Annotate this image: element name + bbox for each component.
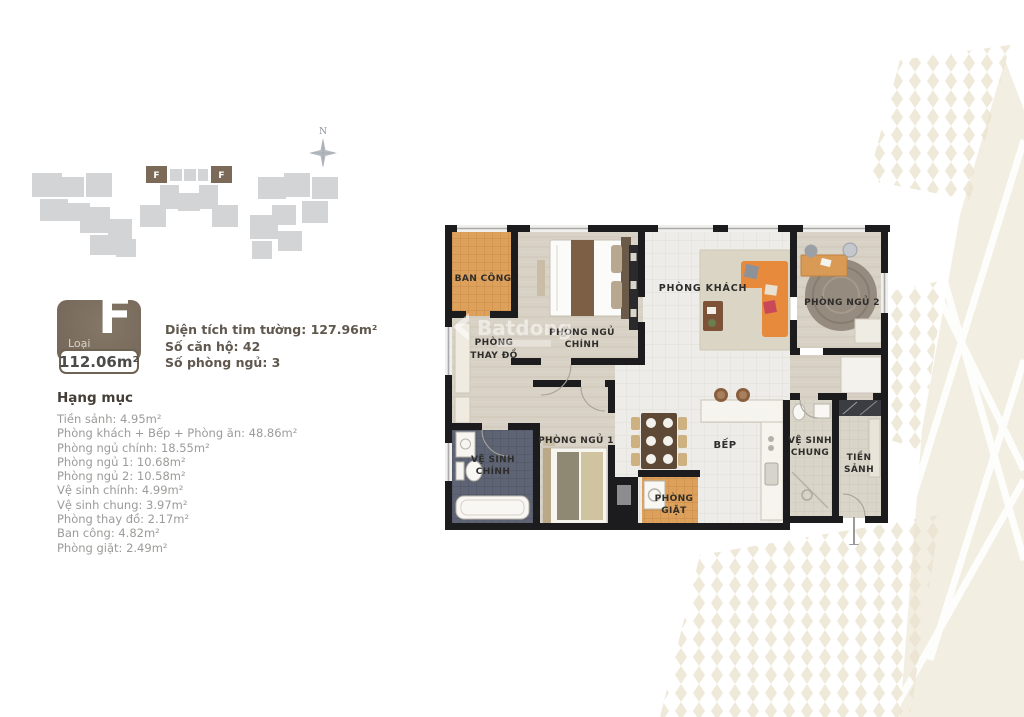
category-item: Vệ sinh chung: 3.97m² (57, 498, 297, 512)
label-ve-sinh-chinh-1: VỆ SINH (471, 454, 515, 465)
unit-marker-f-left: F (146, 166, 167, 183)
unit-summary: Diện tích tim tường: 127.96m²Số căn hộ: … (165, 322, 377, 372)
category-item: Tiền sảnh: 4.95m² (57, 412, 297, 426)
label-phong-giat-1: PHÒNG (655, 492, 694, 504)
unit-area-pill: 112.06m² (59, 349, 139, 374)
svg-text:F: F (218, 171, 224, 181)
dining-table (631, 413, 687, 469)
category-item: Phòng giặt: 2.49m² (57, 541, 297, 555)
floor-plan: BAN CÔNG PHÒNG NGỦ CHÍNH PHÒNG KHÁCH PHÒ… (445, 215, 915, 545)
building-cluster-middle: F F (140, 166, 238, 227)
bed1 (543, 436, 607, 524)
category-item: Phòng khách + Bếp + Phòng ăn: 48.86m² (57, 426, 297, 440)
summary-line: Diện tích tim tường: 127.96m² (165, 322, 377, 339)
summary-line: Số phòng ngủ: 3 (165, 355, 377, 372)
unit-marker-f-right: F (211, 166, 232, 183)
category-item: Phòng ngủ chính: 18.55m² (57, 441, 297, 455)
unit-type-badge: Loại F 112.06m² (57, 300, 141, 374)
svg-text:N: N (319, 127, 327, 137)
watermark-text: Batdong (477, 316, 572, 340)
coffee-table (703, 301, 723, 331)
shaft-inset (617, 485, 631, 505)
compass-icon: N (309, 127, 337, 168)
entry-arrow-icon (849, 517, 859, 545)
category-item: Phòng ngủ 2: 10.58m² (57, 469, 297, 483)
master-bed (537, 237, 631, 319)
label-phong-giat-2: GIẶT (661, 505, 687, 516)
kitchen-dining-floor (615, 365, 785, 530)
site-key-plan: N F F (20, 115, 350, 275)
category-item: Phòng thay đồ: 2.17m² (57, 512, 297, 526)
summary-line: Số căn hộ: 42 (165, 339, 377, 356)
building-cluster-left (32, 173, 136, 257)
master-wardrobe (629, 245, 638, 330)
svg-text:F: F (153, 171, 159, 181)
category-item: Vệ sinh chính: 4.99m² (57, 483, 297, 497)
unit-type-letter: F (98, 291, 132, 341)
label-ve-sinh-chung-2: CHUNG (791, 448, 829, 458)
category-item: Ban công: 4.82m² (57, 526, 297, 540)
label-phong-khach: PHÒNG KHÁCH (659, 282, 747, 294)
bedroom2-cabinet (855, 319, 881, 343)
label-tien-sanh-2: SẢNH (844, 463, 874, 475)
building-cluster-right (250, 173, 338, 259)
categories-title: Hạng mục (57, 390, 133, 406)
closet-nook (841, 357, 881, 393)
categories-list: Tiền sảnh: 4.95m²Phòng khách + Bếp + Phò… (57, 412, 297, 555)
label-ban-cong: BAN CÔNG (455, 272, 512, 284)
label-ve-sinh-chinh-2: CHÍNH (476, 465, 511, 477)
label-ve-sinh-chung-1: VỆ SINH (788, 435, 832, 446)
category-item: Phòng ngủ 1: 10.68m² (57, 455, 297, 469)
